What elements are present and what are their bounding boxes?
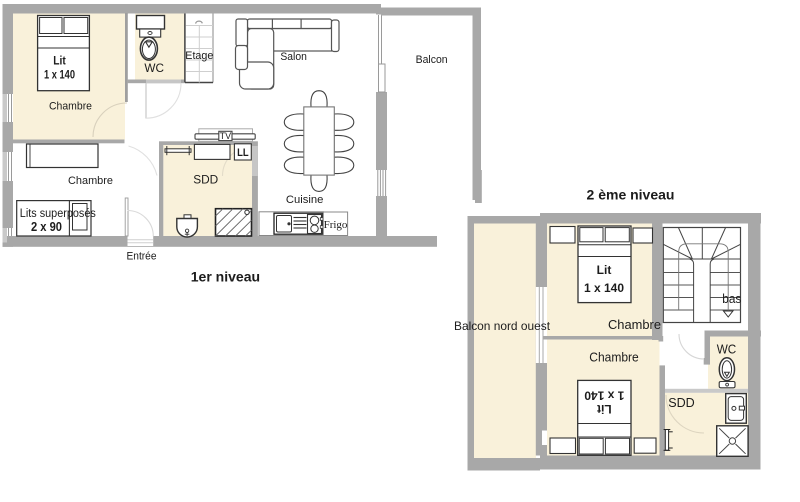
svg-text:Salon: Salon: [280, 51, 307, 63]
svg-text:Balcon nord ouest: Balcon nord ouest: [454, 319, 551, 333]
svg-text:Cuisine: Cuisine: [286, 194, 324, 206]
svg-text:Chambre: Chambre: [589, 351, 639, 365]
svg-text:1 x 140: 1 x 140: [584, 389, 624, 403]
svg-text:Chambre: Chambre: [608, 318, 661, 332]
svg-text:Lits superposés: Lits superposés: [20, 208, 96, 220]
svg-text:1er niveau: 1er niveau: [191, 269, 260, 285]
svg-text:Etage: Etage: [185, 50, 213, 62]
svg-text:Lit: Lit: [597, 402, 612, 416]
svg-text:1 x 140: 1 x 140: [44, 68, 75, 82]
svg-text:SDD: SDD: [193, 173, 218, 187]
svg-text:SDD: SDD: [668, 396, 695, 410]
svg-text:1 x 140: 1 x 140: [584, 281, 624, 295]
svg-text:bas: bas: [722, 292, 741, 306]
svg-text:2 ème niveau: 2 ème niveau: [587, 187, 675, 203]
svg-text:Lit: Lit: [53, 54, 66, 68]
svg-text:Balcon: Balcon: [416, 54, 448, 66]
svg-text:LL: LL: [237, 147, 249, 159]
svg-text:Lit: Lit: [597, 263, 612, 277]
svg-text:WC: WC: [144, 61, 164, 75]
svg-text:WC: WC: [717, 343, 737, 357]
svg-text:Chambre: Chambre: [68, 175, 113, 187]
svg-text:Chambre: Chambre: [49, 101, 92, 113]
svg-text:TV: TV: [220, 131, 232, 141]
svg-text:2 x 90: 2 x 90: [31, 219, 62, 234]
svg-text:Entrée: Entrée: [127, 251, 157, 263]
svg-text:Frigo: Frigo: [324, 219, 348, 231]
